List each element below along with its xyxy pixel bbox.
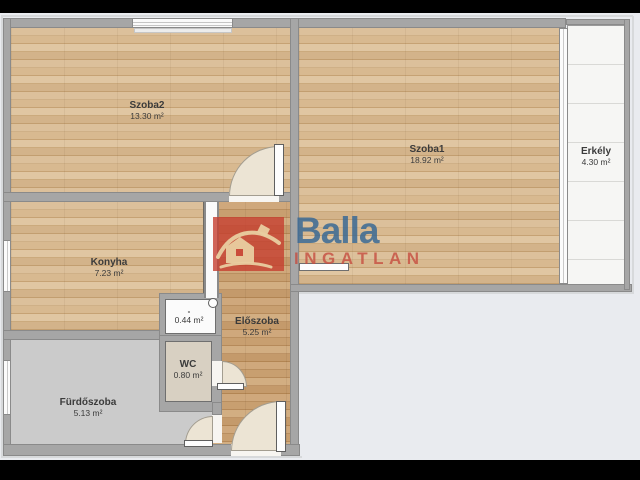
konyha-area: 7.23 m² — [49, 269, 169, 279]
outer-line-bottom — [2, 456, 302, 458]
erkely-label: Erkély 4.30 m² — [566, 146, 626, 167]
kamra-label: - 0.44 m² — [159, 307, 219, 326]
szoba2-area: 13.30 m² — [87, 112, 207, 122]
szoba1-label: Szoba1 18.92 m² — [367, 144, 487, 165]
konyha-name: Konyha — [49, 257, 169, 269]
furdoszoba-doorway-gap — [212, 415, 222, 443]
kamra-area: 0.44 m² — [159, 316, 219, 326]
top-letterbox-bar — [0, 0, 640, 13]
szoba2-label: Szoba2 13.30 m² — [87, 100, 207, 121]
balla-logo-house-icon — [213, 217, 284, 271]
outer-line-top — [1, 15, 633, 17]
floor-plan-image: Szoba2 13.30 m² Szoba1 18.92 m² Erkély 4… — [0, 0, 640, 480]
konyha-window — [3, 240, 11, 292]
szoba1-area: 18.92 m² — [367, 156, 487, 166]
szoba2-name: Szoba2 — [87, 100, 207, 112]
eloszoba-area: 5.25 m² — [217, 328, 297, 338]
eloszoba-name: Előszoba — [217, 316, 297, 328]
house-swoosh-graphic — [213, 217, 284, 271]
wc-area: 0.80 m² — [158, 371, 218, 381]
wc-door-leaf — [217, 383, 244, 390]
wall-top — [3, 18, 566, 28]
wc-name: WC — [158, 359, 218, 371]
wc-label: WC 0.80 m² — [158, 359, 218, 380]
watermark-sub-text: INGATLAN — [294, 250, 425, 267]
furdoszoba-door-leaf — [184, 440, 213, 447]
konyha-label: Konyha 7.23 m² — [49, 257, 169, 278]
szoba1-name: Szoba1 — [367, 144, 487, 156]
outer-line-right — [632, 16, 634, 293]
eloszoba-label: Előszoba 5.25 m² — [217, 316, 297, 337]
furdoszoba-window — [3, 360, 11, 415]
szoba2-window — [132, 18, 233, 28]
furdoszoba-label: Fürdőszoba 5.13 m² — [28, 397, 148, 418]
erkely-area: 4.30 m² — [566, 158, 626, 168]
wall-szoba1-bottom — [290, 284, 632, 292]
furdoszoba-name: Fürdőszoba — [28, 397, 148, 409]
watermark-brand-text: Balla — [295, 212, 378, 249]
entrance-door-leaf — [276, 401, 286, 452]
erkely-name: Erkély — [566, 146, 626, 158]
szoba2-radiator — [134, 28, 232, 33]
furdoszoba-area: 5.13 m² — [28, 409, 148, 419]
bottom-letterbox-bar — [0, 460, 640, 480]
balcony-rail-top — [566, 19, 630, 25]
wall-furdoszoba-eloszoba — [212, 402, 222, 415]
outer-line-szoba1-bottom — [292, 292, 634, 294]
wall-konyha-furdoszoba — [3, 330, 165, 340]
szoba2-door-leaf — [274, 144, 284, 196]
